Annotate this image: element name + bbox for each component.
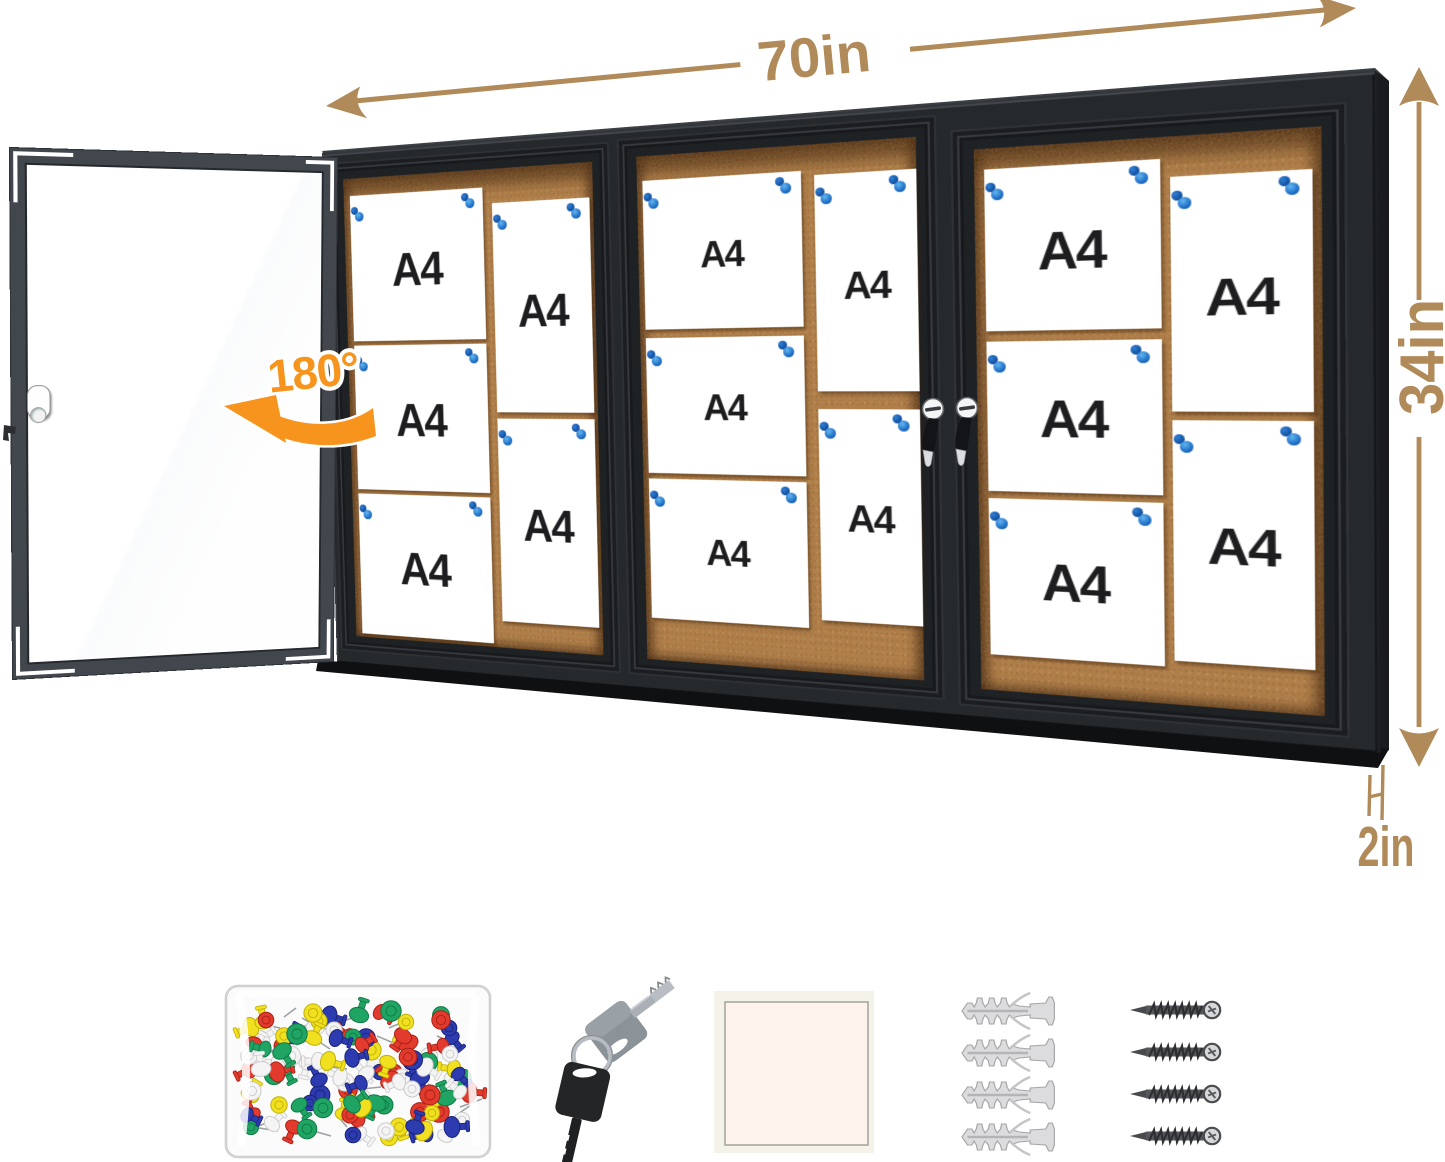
- svg-text:2in: 2in: [1358, 815, 1415, 879]
- svg-text:70in: 70in: [755, 20, 873, 93]
- svg-text:34in: 34in: [1388, 299, 1445, 415]
- svg-text:180°: 180°: [265, 341, 361, 402]
